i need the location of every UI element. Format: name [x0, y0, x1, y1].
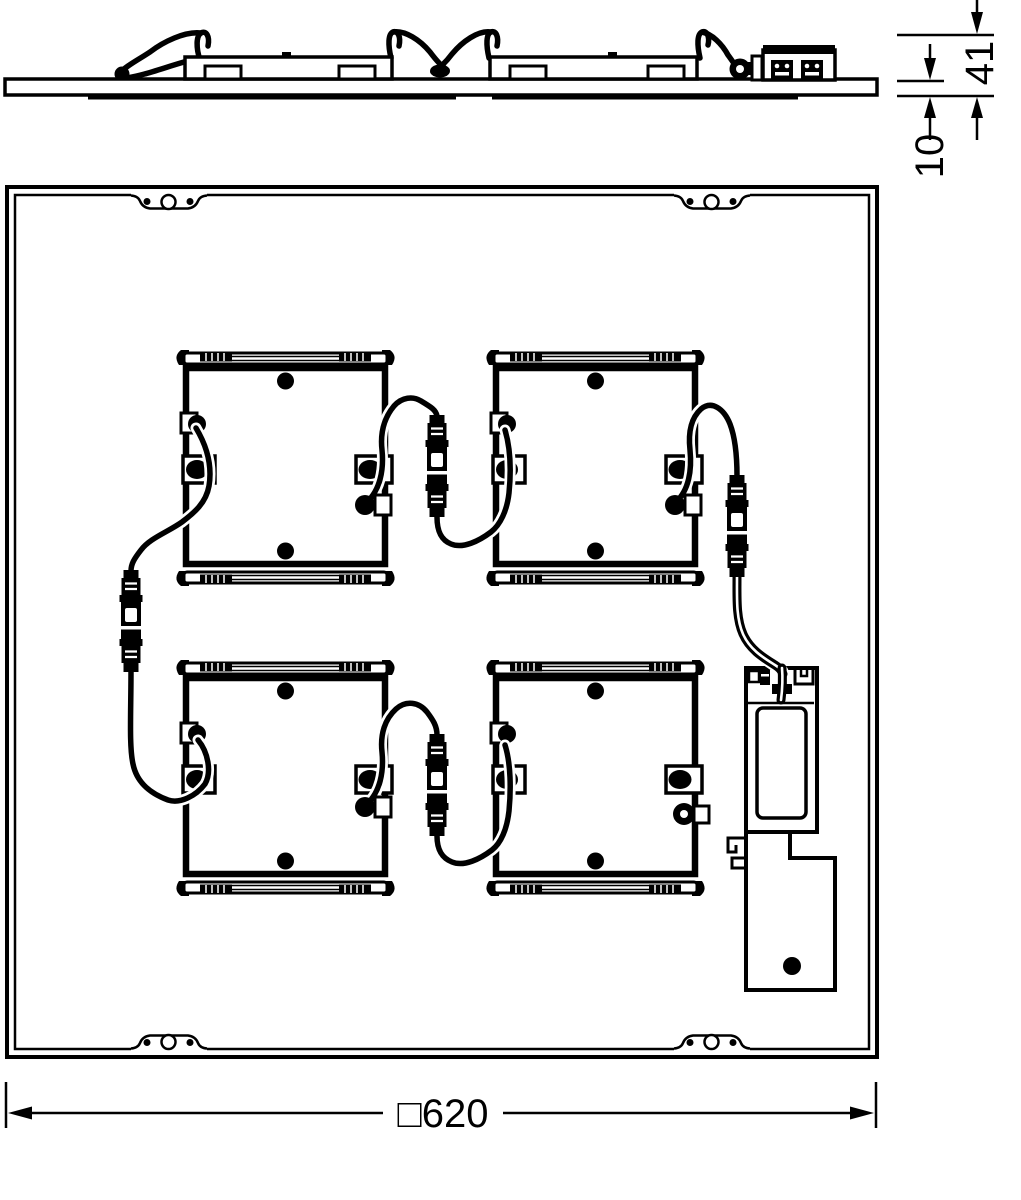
inline-connector-right	[726, 475, 749, 577]
module-side-1	[185, 52, 392, 79]
side-profile-view: 41 10	[5, 0, 1002, 178]
dim-arrow	[971, 97, 983, 118]
dimension-width: □620	[6, 1082, 876, 1136]
dim-label-620: □620	[398, 1092, 489, 1136]
driver-label-area	[757, 708, 806, 818]
mains-terminal-side	[730, 45, 836, 80]
diffuser-strip	[492, 95, 798, 100]
dim-label-41: 41	[958, 41, 1002, 86]
dim-arrow	[924, 58, 936, 80]
luminaire-dimension-drawing: 41 10	[0, 0, 1021, 1200]
led-module-bottom-right	[486, 660, 704, 896]
panel-slab-side	[5, 79, 877, 95]
spare-connector-socket	[673, 803, 709, 825]
cable-knot	[430, 65, 450, 78]
inline-connector-top	[426, 415, 449, 517]
driver-unit	[728, 666, 835, 990]
driver-screw-dot	[783, 957, 801, 975]
diffuser-strip	[88, 95, 456, 100]
inline-connector-left	[120, 570, 143, 672]
dimension-height: 41 10	[897, 0, 1002, 178]
rear-view	[7, 187, 877, 1057]
inline-connector-bottom	[426, 734, 449, 836]
dim-label-10: 10	[908, 134, 952, 179]
led-module-top-right	[486, 350, 704, 586]
dim-arrow	[924, 97, 936, 118]
dim-arrow	[8, 1107, 32, 1120]
module-side-2	[490, 52, 697, 79]
dim-arrow	[850, 1107, 874, 1120]
dim-arrow	[971, 12, 983, 34]
